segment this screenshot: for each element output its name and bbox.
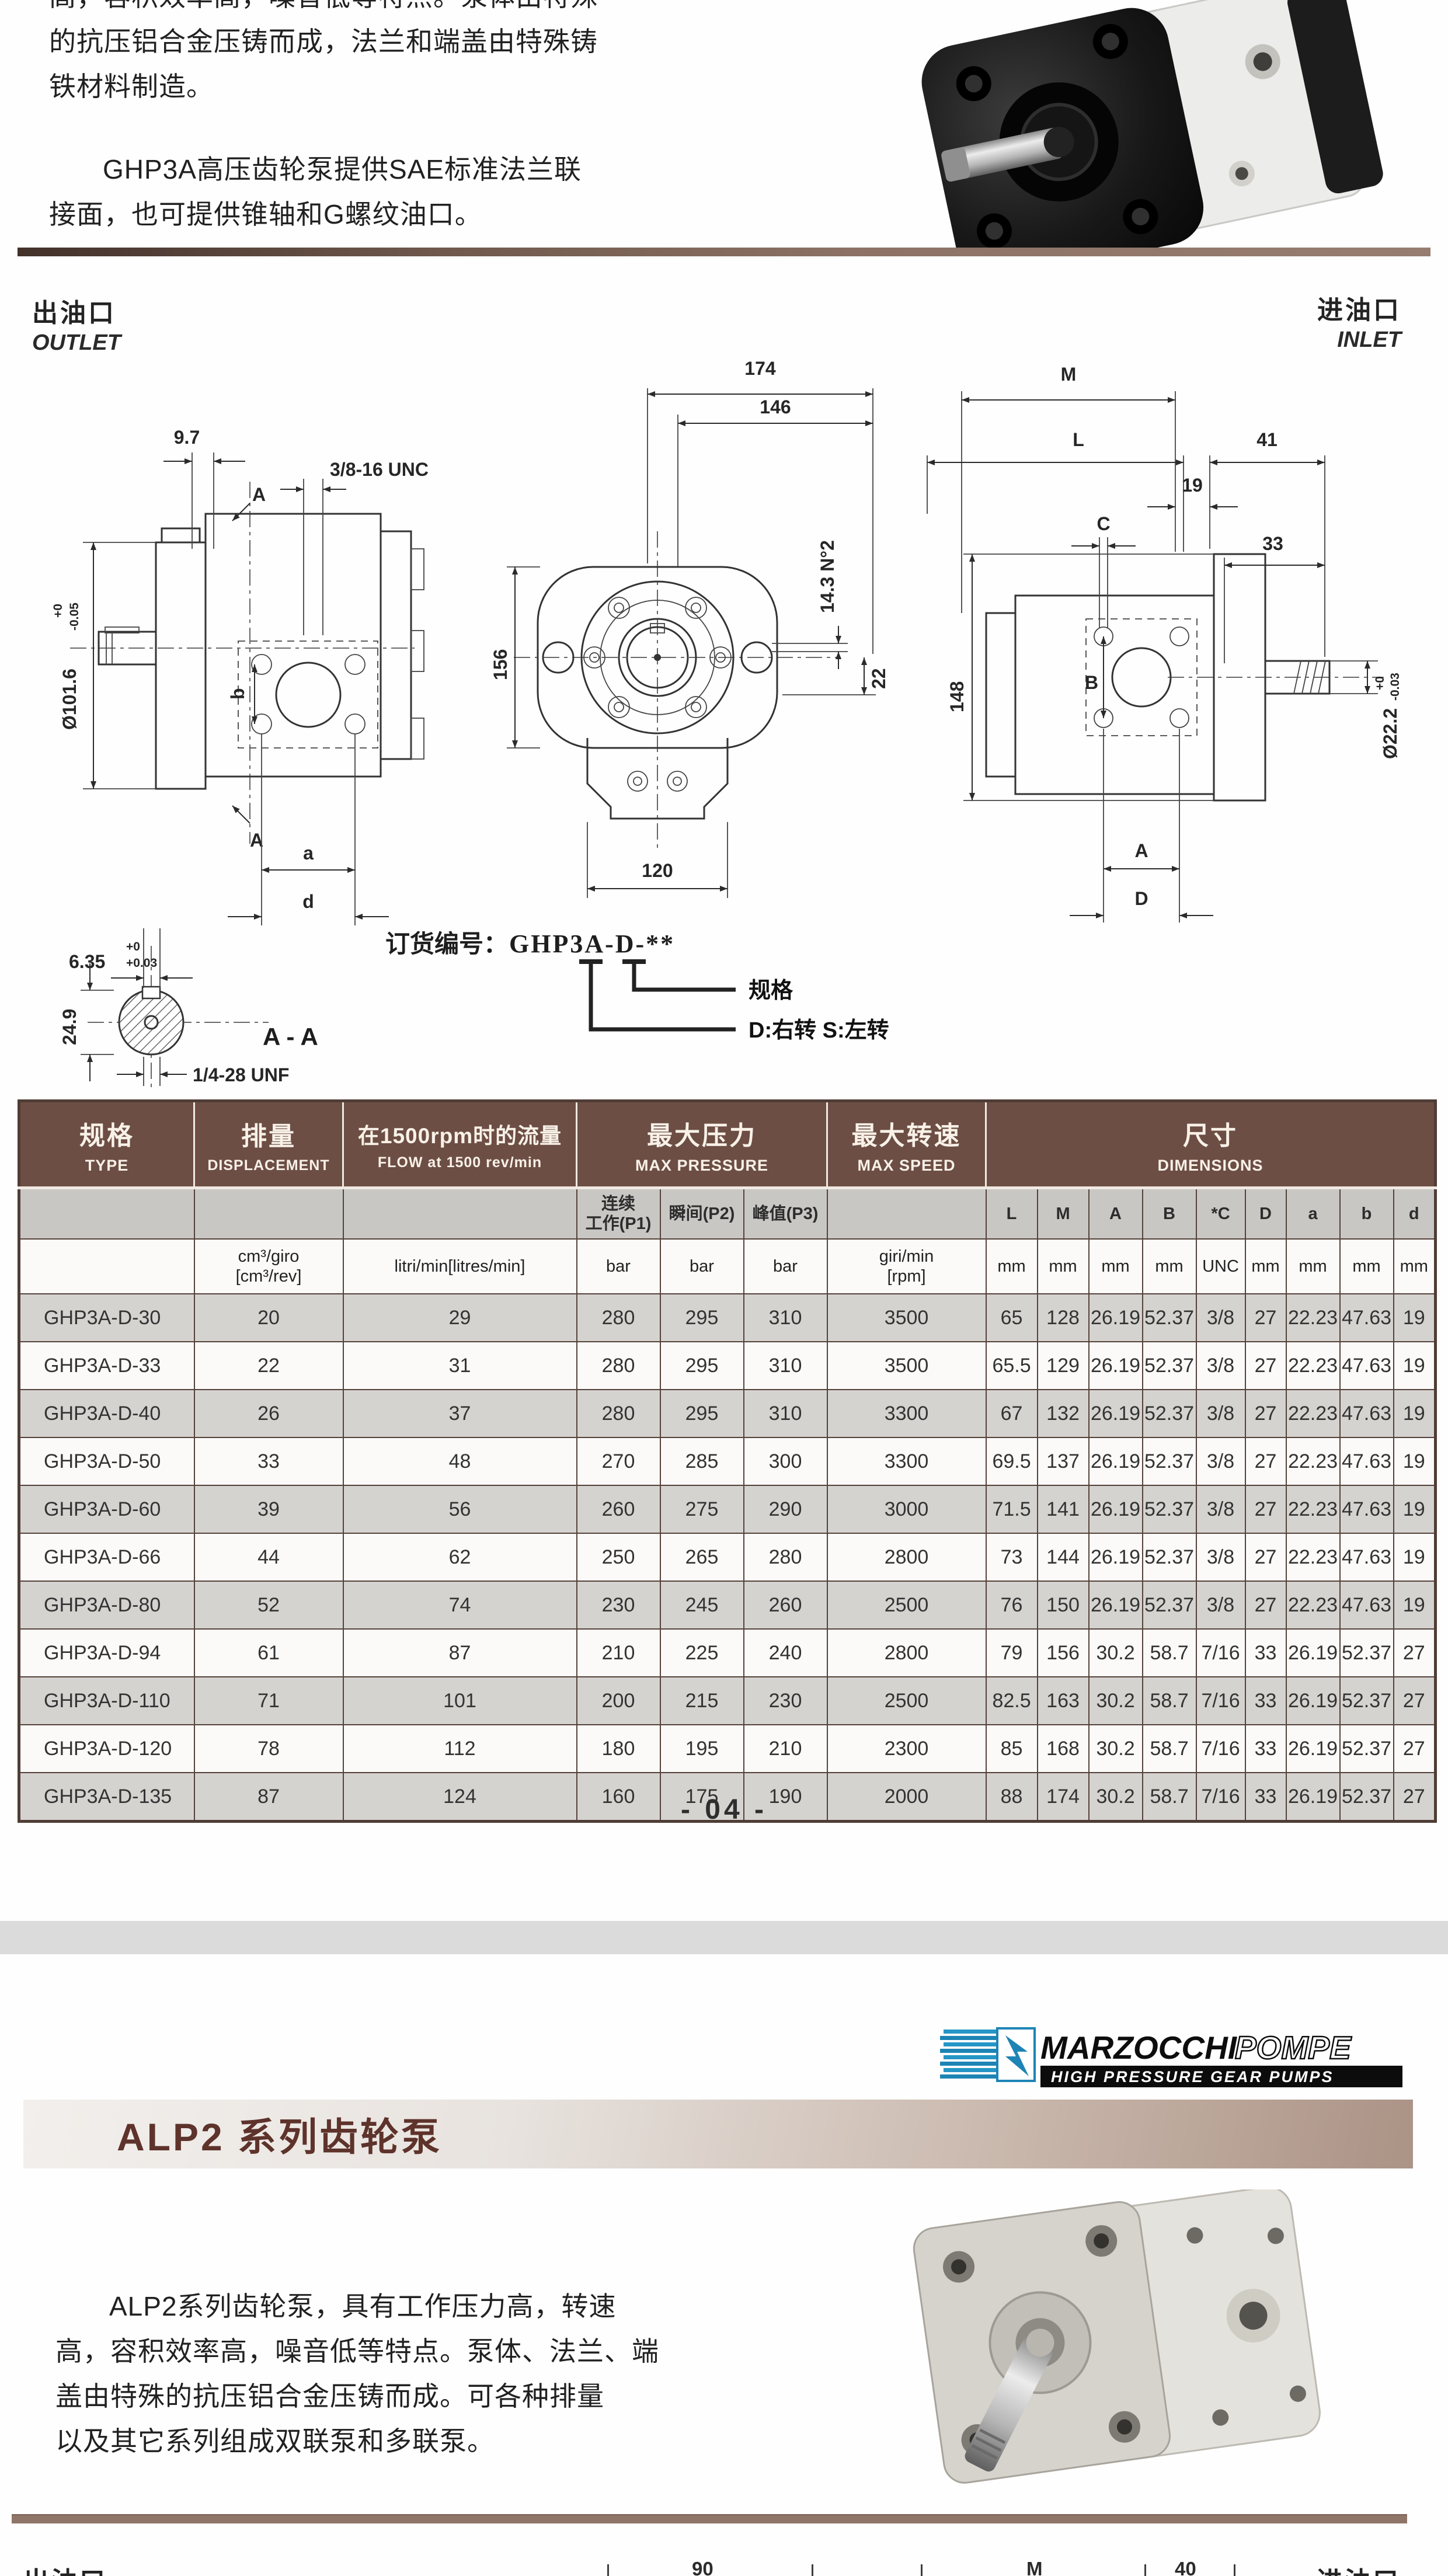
order-callout-rotation: D:右转 S:左转	[749, 1018, 889, 1043]
table-row-cell: 3/8	[1196, 1581, 1245, 1629]
table-row-cell: 26.19	[1089, 1533, 1143, 1581]
table-row-cell: 180	[577, 1725, 660, 1773]
dim-M: M	[1061, 364, 1077, 385]
table-row-cell: 3500	[827, 1342, 986, 1390]
speed-cn: 最大转速	[829, 1115, 984, 1152]
section-title-a-a: A - A	[263, 1023, 318, 1050]
alp2-pump-photo	[847, 2189, 1366, 2508]
alp2-line-1: ALP2系列齿轮泵，具有工作压力高，转速	[55, 2284, 832, 2329]
table-row: GHP3A-D-1207811218019521023008516830.258…	[19, 1725, 1436, 1773]
table-row-cell: 76	[986, 1581, 1038, 1629]
table-row-cell: 26.19	[1089, 1437, 1143, 1485]
table-subheader-row-cell: L	[986, 1188, 1038, 1240]
speed-en: MAX SPEED	[829, 1157, 984, 1175]
dim-6-35-tol-bot: +0.03	[126, 956, 157, 970]
table-row-cell: 19	[1394, 1437, 1436, 1485]
table-row-cell: 129	[1038, 1342, 1089, 1390]
outlet-label-cn: 出油口	[32, 292, 121, 329]
intro2-line-1: GHP3A高压齿轮泵提供SAE标准法兰联	[49, 147, 703, 192]
table-row-cell: 27	[1394, 1629, 1436, 1677]
section-divider-bottom	[12, 2514, 1407, 2523]
table-row-cell: 79	[986, 1629, 1038, 1677]
table-row-cell: 22.23	[1286, 1485, 1340, 1533]
table-row-cell: 3/8	[1196, 1533, 1245, 1581]
table-row-cell: 47.63	[1340, 1342, 1394, 1390]
table-row: GHP3A-D-11071101200215230250082.516330.2…	[19, 1677, 1436, 1725]
table-row-cell: 280	[577, 1342, 660, 1390]
bottom-dim-tick	[1234, 2564, 1235, 2576]
col-header-speed: 最大转速 MAX SPEED	[827, 1101, 986, 1188]
outlet-label-en: OUTLET	[32, 330, 121, 356]
ghp3a-pump-photo	[864, 0, 1407, 252]
table-subheader-row-cell	[19, 1188, 194, 1240]
table-row-cell: 27	[1245, 1390, 1286, 1437]
table-row-cell: 47.63	[1340, 1294, 1394, 1342]
table-row-cell: GHP3A-D-66	[19, 1533, 194, 1581]
table-row-cell: 3/8	[1196, 1437, 1245, 1485]
table-row-cell: 250	[577, 1533, 660, 1581]
table-units-row-cell	[19, 1239, 194, 1294]
col-header-type: 规格 TYPE	[19, 1101, 194, 1188]
table-row-cell: 101	[343, 1677, 577, 1725]
table-row-cell: 44	[194, 1533, 343, 1581]
table-subheader-row-cell: *C	[1196, 1188, 1245, 1240]
table-row-cell: 225	[660, 1629, 744, 1677]
logo-flag-icon	[940, 2028, 1035, 2081]
table-row-cell: 200	[577, 1677, 660, 1725]
table-subheader-row: 连续 工作(P1)瞬间(P2)峰值(P3)LMAB*CDabd	[19, 1188, 1436, 1240]
table-row-cell: 30.2	[1089, 1629, 1143, 1677]
table-row-cell: 22.23	[1286, 1581, 1340, 1629]
table-row-cell: 52.37	[1340, 1677, 1394, 1725]
bottom-dim-90: 90	[692, 2558, 713, 2576]
table-row-cell: 78	[194, 1725, 343, 1773]
table-row-cell: 3500	[827, 1294, 986, 1342]
intro-line-3: 铁材料制造。	[49, 64, 703, 109]
alp2-heading: ALP2 系列齿轮泵	[23, 2106, 442, 2162]
table-row-cell: 58.7	[1143, 1725, 1196, 1773]
table-row-cell: 7/16	[1196, 1677, 1245, 1725]
dim-148: 148	[946, 681, 967, 712]
table-row-cell: GHP3A-D-50	[19, 1437, 194, 1485]
logo-brand-text-outline: POMPE	[1235, 2030, 1352, 2066]
logo-brand-text: MARZOCCHI	[1040, 2030, 1238, 2066]
table-row-cell: 19	[1394, 1533, 1436, 1581]
table-units-row-cell: bar	[660, 1239, 744, 1294]
spec-table-body: GHP3A-D-30202928029531035006512826.1952.…	[19, 1294, 1436, 1822]
dim-dia-tol-bot: -0.05	[68, 603, 81, 631]
dim-19: 19	[1182, 475, 1203, 496]
table-row-cell: 310	[744, 1294, 827, 1342]
table-header-row: 规格 TYPE 排量 DISPLACEMENT 在1500rpm时的流量 FLO…	[19, 1101, 1436, 1188]
table-row-cell: 52.37	[1143, 1533, 1196, 1581]
dims-cn: 尺寸	[987, 1115, 1433, 1152]
alp2-line-4: 以及其它系列组成双联泵和多联泵。	[55, 2419, 832, 2464]
table-row-cell: 270	[577, 1437, 660, 1485]
table-row-cell: 295	[660, 1342, 744, 1390]
catalog-page: 高，容积效率高，噪音低等特点。泵体由特殊 的抗压铝合金压铸而成，法兰和端盖由特殊…	[0, 0, 1448, 2576]
table-row-cell: 310	[744, 1390, 827, 1437]
table-units-row-cell: mm	[1038, 1239, 1089, 1294]
table-row-cell: 26.19	[1286, 1677, 1340, 1725]
table-units-row-cell: mm	[1394, 1239, 1436, 1294]
table-row: GHP3A-D-30202928029531035006512826.1952.…	[19, 1294, 1436, 1342]
table-row-cell: 31	[343, 1342, 577, 1390]
table-row-cell: 150	[1038, 1581, 1089, 1629]
table-subheader-row-cell: A	[1089, 1188, 1143, 1240]
table-row-cell: 215	[660, 1677, 744, 1725]
bottom-dim-tick	[812, 2564, 813, 2576]
table-row-cell: 52.37	[1143, 1437, 1196, 1485]
table-row-cell: 210	[744, 1725, 827, 1773]
col-header-flow: 在1500rpm时的流量 FLOW at 1500 rev/min	[343, 1101, 577, 1188]
table-row-cell: 280	[577, 1390, 660, 1437]
table-subheader-row-cell: M	[1038, 1188, 1089, 1240]
table-units-row-cell: mm	[1089, 1239, 1143, 1294]
bottom-dim-tick	[1144, 2564, 1146, 2576]
table-row-cell: 52	[194, 1581, 343, 1629]
table-row-cell: 295	[660, 1390, 744, 1437]
table-row-cell: 52.37	[1143, 1294, 1196, 1342]
table-row: GHP3A-D-66446225026528028007314426.1952.…	[19, 1533, 1436, 1581]
table-units-row-cell: giri/min [rpm]	[827, 1239, 986, 1294]
outlet-label: 出油口 OUTLET	[32, 292, 121, 356]
table-row-cell: GHP3A-D-94	[19, 1629, 194, 1677]
table-row-cell: 240	[744, 1629, 827, 1677]
bottom-outlet-label: 出油口	[23, 2560, 107, 2576]
dim-D: D	[1134, 888, 1148, 909]
bottom-dim-M: M	[1026, 2558, 1043, 2576]
table-row-cell: 67	[986, 1390, 1038, 1437]
table-row-cell: 52.37	[1143, 1342, 1196, 1390]
table-subheader-row-cell: 峰值(P3)	[744, 1188, 827, 1240]
table-row: GHP3A-D-332231280295310350065.512926.195…	[19, 1342, 1436, 1390]
dim-C: C	[1097, 513, 1110, 534]
alp2-heading-bar: ALP2 系列齿轮泵	[23, 2100, 1413, 2168]
flow-cn: 在1500rpm时的流量	[344, 1118, 575, 1150]
dim-24-9: 24.9	[59, 1009, 80, 1045]
dim-156: 156	[490, 649, 511, 680]
dim-6-35: 6.35	[69, 951, 105, 972]
table-units-row: cm³/giro [cm³/rev]litri/min[litres/min]b…	[19, 1239, 1436, 1294]
table-row-cell: GHP3A-D-60	[19, 1485, 194, 1533]
alp2-line-2: 高，容积效率高，噪音低等特点。泵体、法兰、端	[55, 2329, 832, 2374]
dim-120: 120	[642, 860, 673, 881]
table-row-cell: 26.19	[1286, 1725, 1340, 1773]
table-row-cell: 27	[1245, 1581, 1286, 1629]
alp2-line-3: 盖由特殊的抗压铝合金压铸而成。可各种排量	[55, 2374, 832, 2419]
table-row: GHP3A-D-40263728029531033006713226.1952.…	[19, 1390, 1436, 1437]
table-row-cell: 22.23	[1286, 1294, 1340, 1342]
table-row-cell: 33	[194, 1437, 343, 1485]
dim-22: 22	[868, 668, 889, 689]
table-row-cell: 3000	[827, 1485, 986, 1533]
table-row-cell: GHP3A-D-80	[19, 1581, 194, 1629]
marzocchi-logo: MARZOCCHI POMPE HIGH PRESSURE GEAR PUMPS	[940, 2025, 1407, 2094]
table-units-row-cell: mm	[1245, 1239, 1286, 1294]
table-row-cell: 82.5	[986, 1677, 1038, 1725]
pressure-cn: 最大压力	[578, 1115, 826, 1152]
table-subheader-row-cell	[194, 1188, 343, 1240]
table-row-cell: 22.23	[1286, 1390, 1340, 1437]
table-row-cell: 260	[744, 1581, 827, 1629]
page-break-band	[0, 1921, 1448, 1954]
table-units-row-cell: bar	[577, 1239, 660, 1294]
table-row: GHP3A-D-80527423024526025007615026.1952.…	[19, 1581, 1436, 1629]
table-row-cell: 156	[1038, 1629, 1089, 1677]
disp-cn: 排量	[196, 1115, 342, 1153]
section-mark-a-top: A	[252, 484, 266, 505]
table-row-cell: 230	[744, 1677, 827, 1725]
table-row: GHP3A-D-603956260275290300071.514126.195…	[19, 1485, 1436, 1533]
dim-14-3: 14.3 N°2	[817, 540, 838, 613]
table-row-cell: 74	[343, 1581, 577, 1629]
table-row-cell: 37	[343, 1390, 577, 1437]
table-row-cell: 20	[194, 1294, 343, 1342]
dim-b: b	[227, 688, 248, 699]
table-subheader-row-cell	[827, 1188, 986, 1240]
table-subheader-row-cell: B	[1143, 1188, 1196, 1240]
table-row-cell: 3/8	[1196, 1294, 1245, 1342]
table-row-cell: 7/16	[1196, 1629, 1245, 1677]
table-row-cell: 62	[343, 1533, 577, 1581]
table-row-cell: 65.5	[986, 1342, 1038, 1390]
section-divider-top	[18, 248, 1430, 256]
ghp3a-intro-paragraph-2: GHP3A高压齿轮泵提供SAE标准法兰联 接面，也可提供锥轴和G螺纹油口。	[49, 147, 703, 237]
inlet-label-cn: 进油口	[1226, 289, 1401, 326]
dim-A: A	[1134, 840, 1148, 861]
col-header-dimensions: 尺寸 DIMENSIONS	[986, 1101, 1436, 1188]
table-row-cell: 285	[660, 1437, 744, 1485]
table-row-cell: 22.23	[1286, 1342, 1340, 1390]
table-row-cell: 22.23	[1286, 1533, 1340, 1581]
table-row-cell: 39	[194, 1485, 343, 1533]
spec-table: 规格 TYPE 排量 DISPLACEMENT 在1500rpm时的流量 FLO…	[18, 1099, 1437, 1823]
table-row-cell: GHP3A-D-30	[19, 1294, 194, 1342]
table-row-cell: 26.19	[1089, 1342, 1143, 1390]
table-row-cell: 112	[343, 1725, 577, 1773]
table-row-cell: 73	[986, 1533, 1038, 1581]
table-row-cell: 310	[744, 1342, 827, 1390]
table-row-cell: 58.7	[1143, 1677, 1196, 1725]
table-row-cell: 33	[1245, 1677, 1286, 1725]
order-code-label: 订货编号：	[385, 930, 508, 958]
table-row-cell: 27	[1245, 1342, 1286, 1390]
table-subheader-row-cell: 瞬间(P2)	[660, 1188, 744, 1240]
table-row-cell: 2300	[827, 1725, 986, 1773]
table-row-cell: 65	[986, 1294, 1038, 1342]
table-row: GHP3A-D-503348270285300330069.513726.195…	[19, 1437, 1436, 1485]
intro2-line-2: 接面，也可提供锥轴和G螺纹油口。	[49, 192, 703, 237]
dim-L: L	[1073, 429, 1084, 450]
table-units-row-cell: cm³/giro [cm³/rev]	[194, 1239, 343, 1294]
table-subheader-row-cell: d	[1394, 1188, 1436, 1240]
table-row-cell: 87	[343, 1629, 577, 1677]
table-row-cell: 47.63	[1340, 1581, 1394, 1629]
table-subheader-row-cell: D	[1245, 1188, 1286, 1240]
table-row-cell: 2800	[827, 1533, 986, 1581]
table-row-cell: 19	[1394, 1294, 1436, 1342]
intro-line-2: 的抗压铝合金压铸而成，法兰和端盖由特殊铸	[49, 19, 703, 64]
spec-table-head: 规格 TYPE 排量 DISPLACEMENT 在1500rpm时的流量 FLO…	[19, 1101, 1436, 1294]
table-row-cell: 3/8	[1196, 1390, 1245, 1437]
table-row-cell: 71.5	[986, 1485, 1038, 1533]
table-subheader-row-cell: b	[1340, 1188, 1394, 1240]
table-row-cell: 210	[577, 1629, 660, 1677]
table-row-cell: 19	[1394, 1342, 1436, 1390]
dim-dia-22-2-tol-bot: -0.03	[1388, 673, 1402, 701]
table-row-cell: 141	[1038, 1485, 1089, 1533]
bottom-inlet-label: 进油口	[1317, 2560, 1401, 2576]
bottom-dim-40: 40	[1175, 2558, 1196, 2576]
order-code-value: GHP3A-D-**	[509, 930, 675, 958]
dim-146: 146	[760, 396, 791, 417]
table-row-cell: 52.37	[1340, 1629, 1394, 1677]
table-row-cell: 27	[1245, 1437, 1286, 1485]
bottom-dim-tick	[607, 2564, 609, 2576]
thread-label-14-28: 1/4-28 UNF	[193, 1064, 289, 1085]
table-units-row-cell: mm	[986, 1239, 1038, 1294]
table-row-cell: 26.19	[1089, 1581, 1143, 1629]
drawing-side-view-inlet: B M L 41 19 C 33 148	[923, 339, 1448, 940]
table-row-cell: 85	[986, 1725, 1038, 1773]
table-units-row-cell: bar	[744, 1239, 827, 1294]
table-row-cell: 52.37	[1143, 1581, 1196, 1629]
dim-dia-22-2: Ø22.2	[1380, 708, 1401, 759]
table-row-cell: 33	[1245, 1629, 1286, 1677]
table-row-cell: 27	[1394, 1725, 1436, 1773]
table-units-row-cell: mm	[1340, 1239, 1394, 1294]
table-row-cell: 47.63	[1340, 1533, 1394, 1581]
table-row-cell: 3/8	[1196, 1342, 1245, 1390]
table-row-cell: 168	[1038, 1725, 1089, 1773]
table-row-cell: 27	[1245, 1533, 1286, 1581]
table-row-cell: 33	[1245, 1725, 1286, 1773]
spec-table-section: 规格 TYPE 排量 DISPLACEMENT 在1500rpm时的流量 FLO…	[18, 1099, 1437, 1823]
table-row-cell: 52.37	[1143, 1390, 1196, 1437]
table-row-cell: 27	[1245, 1485, 1286, 1533]
dim-dia-101-6: Ø101.6	[59, 669, 80, 730]
table-row-cell: 56	[343, 1485, 577, 1533]
table-row-cell: 22	[194, 1342, 343, 1390]
dim-174: 174	[744, 358, 776, 379]
dim-dia-tol-top: +0	[51, 604, 65, 618]
dim-dia-22-2-tol-top: +0	[1373, 676, 1387, 690]
table-row-cell: 290	[744, 1485, 827, 1533]
table-row-cell: 3/8	[1196, 1485, 1245, 1533]
table-row-cell: 3300	[827, 1437, 986, 1485]
intro-line-clipped: 高，容积效率高，噪音低等特点。泵体由特殊	[49, 0, 703, 19]
dim-9-7: 9.7	[174, 427, 200, 448]
table-units-row-cell: mm	[1143, 1239, 1196, 1294]
table-row-cell: 245	[660, 1581, 744, 1629]
table-row-cell: GHP3A-D-33	[19, 1342, 194, 1390]
bottom-dim-tick	[921, 2564, 923, 2576]
table-row-cell: 52.37	[1143, 1485, 1196, 1533]
table-row-cell: 2500	[827, 1677, 986, 1725]
table-row-cell: 2500	[827, 1581, 986, 1629]
table-row-cell: 61	[194, 1629, 343, 1677]
table-row-cell: 26.19	[1089, 1485, 1143, 1533]
table-row-cell: 280	[744, 1533, 827, 1581]
order-callout-spec: 规格	[749, 979, 793, 1003]
table-row-cell: 3300	[827, 1390, 986, 1437]
table-row-cell: 26	[194, 1390, 343, 1437]
table-units-row-cell: UNC	[1196, 1239, 1245, 1294]
table-row-cell: 295	[660, 1294, 744, 1342]
table-units-row-cell: mm	[1286, 1239, 1340, 1294]
table-row-cell: 137	[1038, 1437, 1089, 1485]
table-row-cell: GHP3A-D-120	[19, 1725, 194, 1773]
table-row-cell: 69.5	[986, 1437, 1038, 1485]
table-row-cell: 19	[1394, 1581, 1436, 1629]
type-cn: 规格	[21, 1115, 193, 1152]
table-row-cell: 30.2	[1089, 1677, 1143, 1725]
dim-B: B	[1085, 672, 1098, 693]
table-row-cell: GHP3A-D-110	[19, 1677, 194, 1725]
table-row: GHP3A-D-94618721022524028007915630.258.7…	[19, 1629, 1436, 1677]
table-row-cell: 300	[744, 1437, 827, 1485]
table-row-cell: 19	[1394, 1485, 1436, 1533]
table-row-cell: 47.63	[1340, 1390, 1394, 1437]
table-row-cell: 47.63	[1340, 1485, 1394, 1533]
type-en: TYPE	[21, 1157, 193, 1175]
page-number: - 04 -	[0, 1794, 1448, 1826]
table-units-row-cell: litri/min[litres/min]	[343, 1239, 577, 1294]
table-row-cell: 230	[577, 1581, 660, 1629]
table-row-cell: 29	[343, 1294, 577, 1342]
logo-tagline-text: HIGH PRESSURE GEAR PUMPS	[1051, 2068, 1334, 2086]
dim-6-35-tol-top: +0	[126, 940, 140, 953]
table-row-cell: 47.63	[1340, 1437, 1394, 1485]
table-row-cell: 19	[1394, 1390, 1436, 1437]
table-row-cell: 2800	[827, 1629, 986, 1677]
table-row-cell: GHP3A-D-40	[19, 1390, 194, 1437]
table-row-cell: 275	[660, 1485, 744, 1533]
pressure-en: MAX PRESSURE	[578, 1157, 826, 1175]
table-row-cell: 58.7	[1143, 1629, 1196, 1677]
table-row-cell: 260	[577, 1485, 660, 1533]
table-row-cell: 265	[660, 1533, 744, 1581]
table-row-cell: 163	[1038, 1677, 1089, 1725]
ghp3a-intro-paragraph: 高，容积效率高，噪音低等特点。泵体由特殊 的抗压铝合金压铸而成，法兰和端盖由特殊…	[49, 0, 703, 109]
table-row-cell: 280	[577, 1294, 660, 1342]
disp-en: DISPLACEMENT	[196, 1157, 342, 1174]
table-row-cell: 128	[1038, 1294, 1089, 1342]
dim-33: 33	[1262, 533, 1283, 554]
table-row-cell: 26.19	[1089, 1390, 1143, 1437]
dim-41: 41	[1256, 429, 1278, 450]
order-code-block: 订货编号： GHP3A-D-** 规格 D:右转 S:左转	[385, 925, 940, 1060]
table-row-cell: 26.19	[1286, 1629, 1340, 1677]
flow-en: FLOW at 1500 rev/min	[344, 1154, 575, 1171]
table-row-cell: 195	[660, 1725, 744, 1773]
table-row-cell: 132	[1038, 1390, 1089, 1437]
dims-en: DIMENSIONS	[987, 1157, 1433, 1175]
table-row-cell: 7/16	[1196, 1725, 1245, 1773]
thread-label-38-16: 3/8-16 UNC	[330, 459, 429, 480]
table-row-cell: 144	[1038, 1533, 1089, 1581]
table-subheader-row-cell: a	[1286, 1188, 1340, 1240]
drawing-front-view: 174 146 156 14.3 N°2 22 120	[490, 339, 940, 923]
alp2-paragraph: ALP2系列齿轮泵，具有工作压力高，转速 高，容积效率高，噪音低等特点。泵体、法…	[55, 2284, 832, 2464]
table-row-cell: 27	[1245, 1294, 1286, 1342]
table-row-cell: 30.2	[1089, 1725, 1143, 1773]
col-header-displacement: 排量 DISPLACEMENT	[194, 1101, 343, 1188]
table-row-cell: 52.37	[1340, 1725, 1394, 1773]
table-row-cell: 71	[194, 1677, 343, 1725]
table-subheader-row-cell	[343, 1188, 577, 1240]
